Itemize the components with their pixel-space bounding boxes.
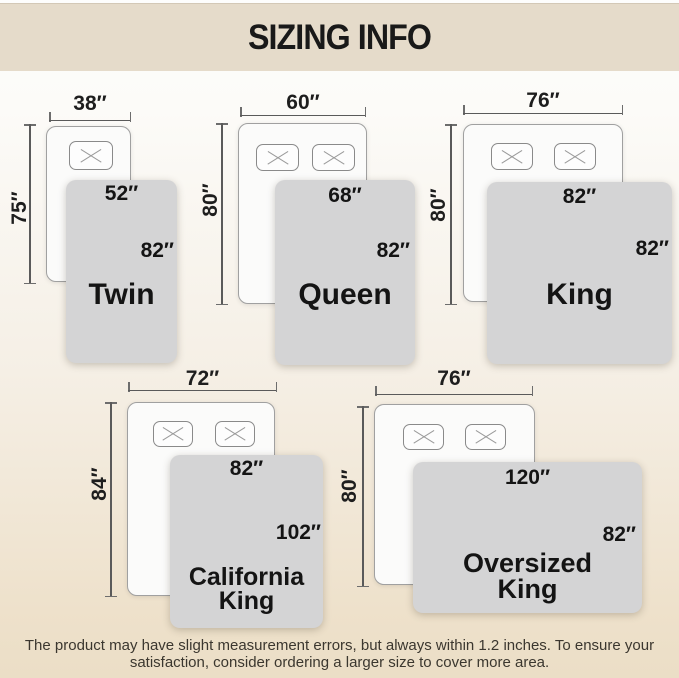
- pillow-icon: [403, 424, 444, 450]
- oversized-king-blanket: 120″ 82″ OversizedKing: [413, 462, 642, 613]
- footer-note: The product may have slight measurement …: [0, 637, 679, 671]
- sizing-info-page: SIZING INFO 38″ 75″ 52″ 82″ Twin 60″ 80″…: [0, 0, 679, 678]
- oversized-king-bed-length-label: 80″: [337, 456, 363, 516]
- diagram-oversized-king: 76″ 80″ 120″ 82″ OversizedKing: [0, 0, 679, 678]
- blanket-length-label: 82″: [603, 524, 636, 545]
- pillow-x-icon: [466, 425, 505, 449]
- oversized-king-bed-width-label: 76″: [375, 368, 533, 389]
- footer-line-2: satisfaction, consider ordering a larger…: [0, 654, 679, 671]
- footer-line-1: The product may have slight measurement …: [0, 637, 679, 654]
- pillow-x-icon: [404, 425, 443, 449]
- size-name-label: OversizedKing: [413, 550, 642, 602]
- blanket-width-label: 120″: [413, 467, 642, 488]
- pillow-icon: [465, 424, 506, 450]
